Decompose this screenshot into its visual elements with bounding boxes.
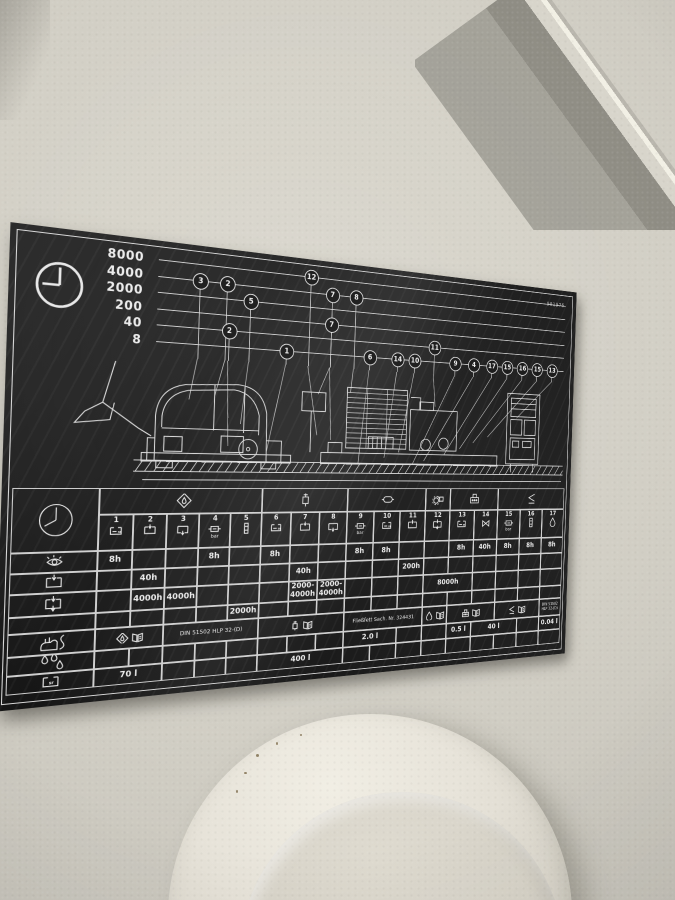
column-number: 10: [383, 513, 391, 520]
column-number: 15: [505, 511, 512, 518]
empty-cell: [197, 585, 229, 607]
cell-text: 8h: [381, 547, 390, 555]
cell-text: 40h: [478, 544, 490, 552]
cell-text: 40h: [139, 574, 157, 584]
value-cell: 200h: [398, 558, 424, 576]
empty-cell: [317, 561, 345, 580]
service-point-marker: 9: [449, 356, 462, 371]
service-column-7: 7: [290, 512, 320, 545]
empty-cell: [344, 578, 372, 599]
empty-cell: [495, 570, 518, 589]
corner-shadow: [0, 0, 50, 120]
service-point-marker: 15: [532, 362, 543, 376]
empty-cell: [518, 554, 541, 571]
empty-cell: [318, 544, 346, 563]
oil-diamond-icon: [116, 632, 129, 644]
drain-icon: [177, 524, 190, 536]
pellets-box-icon: [461, 608, 470, 618]
service-point-marker: 16: [517, 361, 529, 376]
service-point-marker: 2: [220, 275, 236, 293]
bar-unit-label: bar: [505, 528, 511, 533]
empty-cell: [424, 541, 449, 559]
dirt-speck: [244, 772, 247, 774]
value-cell: 40h: [131, 568, 165, 589]
value-cell: 8h: [260, 545, 290, 564]
service-point-marker: 13: [546, 364, 557, 378]
service-column-1: 1sr: [98, 514, 134, 551]
filter-icon: [240, 523, 252, 534]
group-header-capsule: [347, 488, 426, 511]
service-point-marker: 3: [192, 272, 208, 290]
drop-icon: [424, 611, 433, 621]
marker-stub-line: [330, 331, 332, 368]
service-column-10: 10sr: [373, 511, 400, 543]
empty-cell: [372, 559, 399, 577]
clock-icon: [35, 502, 77, 538]
rail-track: [133, 460, 566, 482]
cell-text: 4000h: [133, 594, 163, 604]
fill-icon: [143, 525, 156, 537]
service-column-17: 17: [541, 509, 563, 538]
oil-diamond-icon: [176, 494, 192, 508]
column-number: 7: [303, 514, 308, 521]
service-point-marker: 6: [363, 349, 377, 365]
cell-text: 8h: [270, 551, 281, 560]
column-number: 13: [458, 512, 466, 519]
maintenance-plate: 981975 800040002000200408123278572111614…: [0, 222, 577, 712]
maintenance-schedule-table: 1sr234bar56sr789bar10sr111213sr1415bar16…: [5, 488, 564, 696]
rail-vehicle-drawing: [73, 358, 294, 469]
empty-cell: [132, 549, 166, 570]
value-cell: 8h: [519, 538, 542, 555]
cell-text: 8h: [548, 542, 556, 549]
empty-cell: [194, 658, 226, 678]
value-cell: 2000-4000h: [288, 580, 317, 601]
service-point-marker: 11: [428, 340, 441, 355]
column-number: 14: [482, 512, 489, 519]
empty-cell: [470, 635, 494, 652]
column-number: 6: [274, 514, 279, 521]
level-check-icon: sr: [109, 525, 123, 537]
pellets-box-icon: [469, 493, 481, 505]
service-point-marker: 2: [221, 323, 237, 340]
cell-text: 8h: [526, 542, 534, 549]
empty-cell: [472, 555, 496, 572]
grease-gun-icon: [290, 620, 301, 631]
empty-cell: [369, 643, 396, 661]
service-column-15: 15bar: [497, 510, 521, 540]
cell-text: 2.0 l: [362, 633, 379, 642]
cell-text: 400 l: [290, 655, 310, 665]
fill-icon: [407, 520, 417, 530]
empty-cell: [538, 629, 560, 645]
eye-icon: [45, 554, 64, 570]
book-icon: [435, 610, 444, 620]
value-cell: 8h: [449, 540, 474, 557]
svg-text:sr: sr: [49, 680, 55, 686]
service-column-2: 2: [132, 514, 167, 550]
bar-unit-label: bar: [211, 535, 219, 540]
book-icon: [303, 619, 314, 630]
value-cell: 8h: [496, 538, 519, 555]
service-point-marker: 4: [468, 358, 480, 373]
value-cell: 8h: [373, 542, 400, 560]
empty-cell: [472, 571, 496, 590]
hand-grease-icon: [38, 631, 65, 656]
group-header-gear-oilcan: [426, 488, 451, 510]
cell-text: 8000h: [437, 579, 458, 588]
cell-text: DIN 51502 HLP 32-(D): [180, 626, 243, 637]
empty-cell: [448, 556, 473, 574]
cell-text: 40h: [296, 568, 311, 577]
value-cell: 40h: [289, 562, 318, 581]
column-number: 12: [434, 512, 442, 519]
marker-stub-line: [228, 337, 230, 360]
service-point-marker: 10: [408, 353, 421, 369]
value-cell: 2000-4000h: [317, 579, 345, 600]
empty-cell: [289, 544, 318, 563]
grease-gun-icon: [299, 494, 313, 507]
change-icon: [433, 520, 443, 530]
book-icon: [131, 631, 144, 643]
column-number: 2: [148, 516, 153, 524]
marker-stub-line: [197, 287, 200, 359]
service-point-marker: 12: [304, 269, 319, 286]
empty-cell: [495, 554, 518, 571]
cell-text: 8h: [208, 553, 219, 562]
empty-cell: [228, 583, 259, 605]
empty-cell: [259, 563, 289, 583]
marker-stub-line: [353, 303, 356, 369]
cell-text: 2000-4000h: [318, 581, 343, 598]
value-cell: 8h: [541, 537, 563, 553]
fill-icon: [44, 575, 63, 592]
empty-cell: [395, 641, 421, 659]
panel-edge-trim: [415, 0, 675, 230]
dirt-speck: [236, 790, 238, 793]
empty-cell: [258, 582, 288, 604]
service-column-3: 3: [166, 514, 200, 549]
svg-text:sr: sr: [463, 524, 466, 527]
empty-cell: [197, 566, 229, 586]
capsule-icon: [381, 493, 394, 506]
fill-icon: [299, 522, 310, 533]
empty-cell: [226, 655, 257, 675]
service-point-marker: 7: [325, 287, 339, 304]
cell-text: 40 l: [487, 623, 499, 631]
service-column-6: 6sr: [260, 512, 291, 546]
empty-cell: [399, 541, 425, 559]
cell-text: 8h: [504, 543, 512, 550]
book-icon: [472, 608, 481, 618]
dirt-speck: [276, 742, 278, 745]
cell-text: DIN 51502 HLP 32-(D): [539, 602, 560, 611]
service-column-11: 11: [399, 511, 425, 542]
empty-cell: [342, 645, 369, 663]
cell-text: 2000-4000h: [290, 582, 315, 600]
service-column-9: 9bar: [346, 511, 374, 543]
book-icon: [518, 604, 526, 613]
cell-text: 8h: [355, 548, 365, 556]
scale-line: [157, 324, 564, 359]
empty-cell: [371, 576, 398, 596]
drop-icon: [548, 518, 557, 528]
tank-icon: sr: [41, 674, 60, 691]
value-cell: DIN 51502 HLP 32-(D): [539, 598, 561, 617]
empty-cell: [345, 560, 372, 579]
cell-text: 0.04 l: [541, 618, 558, 626]
empty-cell: [397, 575, 423, 595]
group-header-oil-diamond: [99, 488, 262, 515]
empty-cell: [540, 568, 562, 586]
value-cell: 8h: [198, 547, 230, 567]
change-icon: [44, 596, 63, 613]
value-cell: 4000h: [130, 588, 164, 611]
spec-icons-cell: [422, 605, 447, 625]
empty-cell: [162, 661, 195, 681]
machine-housing-photo: 981975 800040002000200408123278572111614…: [0, 0, 675, 900]
empty-cell: [229, 546, 260, 566]
group-header-grease-gun: [261, 488, 348, 513]
empty-cell: [96, 589, 131, 613]
empty-cell: [540, 553, 562, 570]
empty-cell: [516, 631, 539, 647]
belt-icon: [481, 519, 490, 529]
cell-text: 8h: [457, 545, 466, 553]
service-point-marker: 17: [486, 359, 498, 374]
empty-cell: [518, 569, 541, 588]
empty-cell: [165, 567, 198, 588]
clock-cell: [10, 488, 100, 554]
cell-text: 70 l: [119, 670, 137, 680]
service-point-marker: 1: [279, 343, 294, 360]
marker-stub-line: [433, 354, 434, 375]
empty-cell: [229, 565, 260, 585]
value-cell: 8h: [346, 543, 373, 561]
column-number: 11: [409, 512, 417, 519]
cell-text: 2000h: [230, 607, 257, 617]
control-cabinet-drawing: [505, 393, 540, 472]
service-point-marker: 14: [391, 352, 404, 368]
gear-oilcan-icon: [432, 493, 444, 505]
empty-cell: [445, 637, 470, 654]
value-cell: 40h: [473, 539, 497, 556]
column-number: 3: [181, 516, 186, 524]
marker-stub-line: [308, 284, 312, 367]
service-column-12: 12: [425, 510, 451, 541]
value-cell: 8h: [97, 550, 132, 571]
group-header-lte: [497, 488, 564, 510]
column-number: 5: [244, 515, 249, 523]
cell-text: 0.5 l: [451, 626, 466, 635]
service-point-marker: 5: [243, 293, 259, 310]
column-number: 4: [213, 515, 218, 523]
empty-cell: [423, 557, 448, 575]
group-header-pellets-box: [450, 488, 498, 510]
filter-icon: [526, 518, 535, 528]
svg-text:sr: sr: [118, 531, 122, 535]
empty-cell: [421, 639, 446, 656]
column-number: 1: [113, 516, 119, 524]
cell-text: 4000h: [166, 592, 195, 602]
column-number: 16: [528, 511, 535, 517]
empty-cell: [96, 570, 131, 591]
service-column-5: 5: [230, 513, 262, 547]
drain-icon: [327, 521, 338, 532]
dirt-speck: [256, 754, 259, 757]
level-check-icon: sr: [270, 522, 282, 533]
level-check-icon: sr: [457, 519, 467, 529]
value-cell: 4000h: [164, 586, 197, 609]
bar-unit-label: bar: [357, 531, 364, 536]
service-point-marker: 8: [349, 289, 363, 306]
lte-icon: [508, 605, 516, 614]
service-point-marker: 7: [325, 316, 339, 333]
service-column-16: 16: [519, 509, 542, 538]
empty-cell: [165, 548, 198, 568]
service-column-13: 13sr: [449, 510, 474, 540]
lte-icon: [526, 493, 537, 505]
service-column-8: 8: [318, 512, 347, 545]
service-column-14: 14: [473, 510, 497, 540]
svg-text:sr: sr: [277, 528, 280, 531]
column-number: 9: [358, 513, 362, 520]
service-point-marker: 15: [501, 360, 513, 375]
level-check-icon: sr: [382, 520, 392, 531]
dirt-speck: [300, 734, 302, 736]
service-column-4: 4bar: [199, 513, 232, 548]
svg-text:sr: sr: [388, 525, 391, 528]
cell-text: Fließfett Sach. Nr. 324431: [352, 614, 414, 624]
cell-text: 8h: [109, 556, 121, 565]
empty-cell: [493, 633, 516, 650]
cell-text: 200h: [402, 563, 420, 571]
column-number: 17: [549, 511, 556, 517]
column-number: 8: [331, 514, 336, 521]
